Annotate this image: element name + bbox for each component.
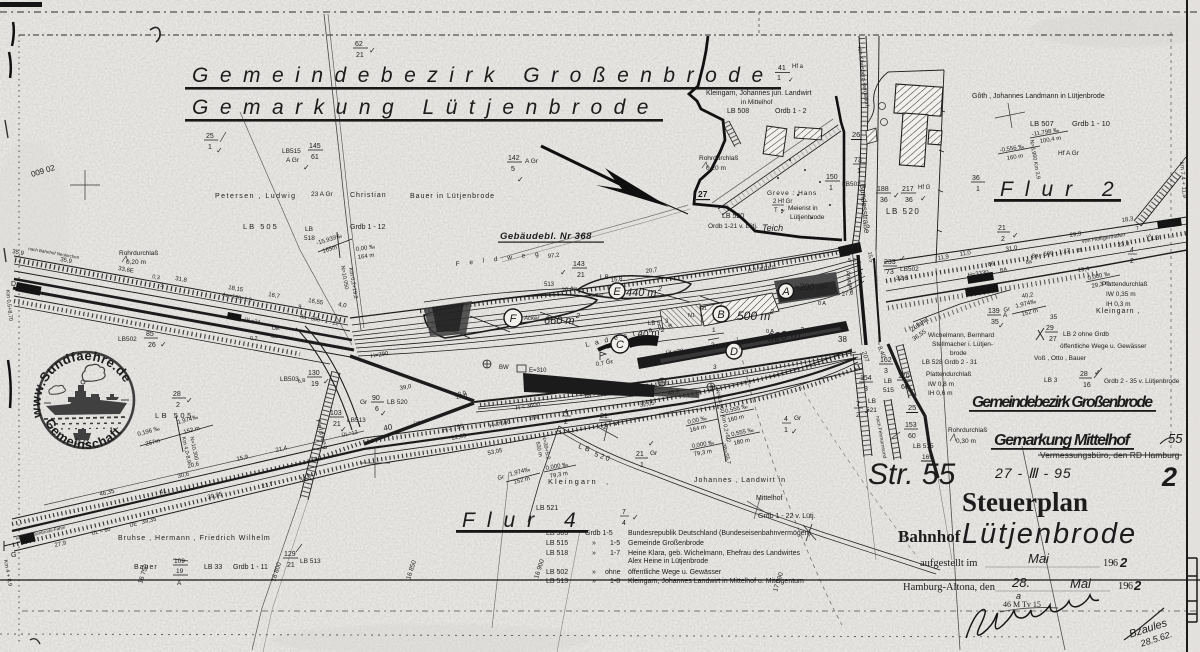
svg-text:A Gr: A Gr bbox=[286, 157, 300, 164]
svg-text:IH 0,3 m: IH 0,3 m bbox=[1106, 301, 1131, 308]
svg-text:Ordb 1 - 2: Ordb 1 - 2 bbox=[775, 108, 807, 115]
svg-text:Hf A Gr: Hf A Gr bbox=[1058, 150, 1080, 157]
svg-text:✓: ✓ bbox=[791, 427, 798, 436]
svg-text:R1: R1 bbox=[700, 306, 707, 312]
svg-text:✓: ✓ bbox=[899, 254, 906, 263]
svg-text:T: T bbox=[774, 208, 778, 214]
svg-text:86: 86 bbox=[987, 261, 994, 268]
svg-text:41: 41 bbox=[778, 65, 786, 72]
svg-text:Kleingarn, Johannes jun. La: Kleingarn, Johannes jun. Landwirt bbox=[706, 90, 812, 97]
svg-text:Ğε: Ğε bbox=[605, 358, 614, 366]
svg-text:E=310: E=310 bbox=[529, 368, 547, 374]
svg-text:Bauer in Lütjenbrode: Bauer in Lütjenbrode bbox=[410, 193, 495, 200]
svg-text:21: 21 bbox=[577, 272, 585, 279]
svg-text:Hamburg-Altona, den: Hamburg-Altona, den bbox=[903, 582, 996, 593]
svg-text:Plattendurchlaß: Plattendurchlaß bbox=[1102, 281, 1148, 288]
svg-text:Lütjenbrode: Lütjenbrode bbox=[790, 214, 825, 221]
svg-text:LB 513: LB 513 bbox=[546, 578, 568, 585]
svg-text:61: 61 bbox=[311, 154, 319, 161]
svg-text:29: 29 bbox=[1046, 325, 1054, 332]
svg-text:0 A: 0 A bbox=[818, 301, 826, 307]
svg-text:Grdb 1 - 10: Grdb 1 - 10 bbox=[1072, 119, 1110, 128]
svg-text:Grdb 2 - 35 v. Lütjenbrode: Grdb 2 - 35 v. Lütjenbrode bbox=[1104, 378, 1180, 385]
svg-text:1-7: 1-7 bbox=[610, 550, 620, 557]
svg-text:✓: ✓ bbox=[369, 46, 376, 55]
svg-text:LB 513: LB 513 bbox=[300, 558, 321, 565]
svg-text:Lütjenbrode: Lütjenbrode bbox=[962, 518, 1137, 550]
svg-text:1: 1 bbox=[857, 168, 861, 175]
svg-text:4: 4 bbox=[564, 409, 568, 416]
svg-text:130: 130 bbox=[308, 370, 320, 377]
svg-text:1: 1 bbox=[829, 185, 833, 192]
svg-text:Gemeinde Großenbrode: Gemeinde Großenbrode bbox=[628, 540, 704, 547]
svg-text:2: 2 bbox=[575, 313, 580, 320]
svg-text:2: 2 bbox=[657, 286, 662, 293]
svg-text:Petersen , Ludwig: Petersen , Ludwig bbox=[215, 193, 297, 200]
svg-text:Voß , Otto , Bauer: Voß , Otto , Bauer bbox=[1034, 355, 1087, 362]
svg-text:LB 507: LB 507 bbox=[1030, 119, 1054, 128]
svg-text:Gr: Gr bbox=[650, 450, 658, 457]
svg-text:Mai: Mai bbox=[1028, 551, 1050, 566]
svg-text:LB: LB bbox=[884, 378, 892, 385]
svg-text:✓: ✓ bbox=[632, 513, 639, 522]
svg-text:LB 520: LB 520 bbox=[722, 213, 744, 220]
svg-text:6: 6 bbox=[375, 406, 379, 413]
svg-text:25: 25 bbox=[206, 133, 214, 140]
svg-text:1: 1 bbox=[208, 144, 212, 151]
svg-text:Flur 2: Flur 2 bbox=[1000, 178, 1126, 201]
svg-text:Gebäudebl. Nr 368: Gebäudebl. Nr 368 bbox=[500, 231, 592, 242]
svg-text:✓: ✓ bbox=[1094, 368, 1101, 377]
svg-text:21: 21 bbox=[287, 562, 295, 569]
svg-text:Hf a: Hf a bbox=[792, 64, 804, 70]
svg-text:73: 73 bbox=[854, 157, 862, 164]
svg-text:Christian: Christian bbox=[350, 192, 387, 199]
svg-text:✓: ✓ bbox=[323, 377, 330, 386]
svg-text:Stellmacher i. Lütjen-: Stellmacher i. Lütjen- bbox=[932, 341, 993, 348]
svg-text:A Gr: A Gr bbox=[525, 158, 539, 165]
svg-text:170: 170 bbox=[898, 373, 910, 380]
svg-text:LB: LB bbox=[868, 398, 876, 405]
svg-text:A: A bbox=[781, 286, 789, 298]
svg-text:6: 6 bbox=[1113, 558, 1118, 569]
svg-text:2: 2 bbox=[564, 419, 568, 426]
svg-text:21: 21 bbox=[356, 52, 364, 59]
svg-text:L B: L B bbox=[600, 275, 609, 281]
svg-text:✓: ✓ bbox=[893, 191, 900, 200]
svg-text:103: 103 bbox=[330, 410, 342, 417]
svg-text:Hf G: Hf G bbox=[918, 185, 931, 191]
svg-text:LB 518: LB 518 bbox=[546, 550, 568, 557]
svg-text:27: 27 bbox=[698, 189, 708, 199]
svg-text:38: 38 bbox=[838, 335, 847, 344]
svg-text:36: 36 bbox=[905, 197, 913, 204]
svg-text:1: 1 bbox=[976, 186, 980, 193]
svg-text:Bruhse , Hermann , Friedri: Bruhse , Hermann , Friedrich Wilhelm bbox=[118, 535, 271, 542]
svg-text:✓: ✓ bbox=[517, 175, 524, 184]
svg-text:217: 217 bbox=[902, 186, 914, 193]
svg-text:öffentliche Wege u. Gewässer: öffentliche Wege u. Gewässer bbox=[1060, 343, 1147, 350]
svg-text:»: » bbox=[592, 578, 596, 585]
svg-text:LB 508: LB 508 bbox=[727, 108, 749, 115]
svg-text:440 m: 440 m bbox=[626, 287, 657, 299]
svg-text:1-8: 1-8 bbox=[610, 578, 620, 585]
svg-text:Kleingarn, Johannes Landwirt i: Kleingarn, Johannes Landwirt in Mittelho… bbox=[628, 578, 804, 585]
svg-text:2: 2 bbox=[660, 327, 665, 334]
svg-text:a: a bbox=[1016, 591, 1021, 601]
svg-text:»: » bbox=[592, 550, 596, 557]
svg-text:Mai: Mai bbox=[1070, 576, 1092, 591]
svg-text:660 m: 660 m bbox=[544, 315, 575, 327]
svg-text:2: 2 bbox=[1119, 555, 1128, 570]
svg-text:23 A Gr: 23 A Gr bbox=[311, 191, 334, 198]
svg-text:19: 19 bbox=[311, 381, 319, 388]
svg-text:IW 0,8 m: IW 0,8 m bbox=[928, 381, 954, 388]
svg-text:LB503: LB503 bbox=[280, 376, 299, 383]
svg-text:Greve : Hans: Greve : Hans bbox=[767, 190, 817, 197]
svg-text:60: 60 bbox=[901, 384, 909, 391]
svg-text:LB 515: LB 515 bbox=[913, 443, 934, 450]
svg-text:LB 2 ohne Grdb: LB 2 ohne Grdb bbox=[1063, 331, 1109, 338]
svg-text:73: 73 bbox=[886, 269, 894, 276]
svg-text:Acker: Acker bbox=[523, 316, 540, 322]
svg-text:154: 154 bbox=[860, 375, 872, 382]
svg-text:IH 0,6 m: IH 0,6 m bbox=[928, 390, 953, 397]
svg-text:21: 21 bbox=[636, 451, 644, 458]
svg-text:✓: ✓ bbox=[340, 425, 347, 434]
svg-text:1: 1 bbox=[712, 327, 716, 334]
svg-text:Rohrdurchlaß: Rohrdurchlaß bbox=[119, 250, 158, 257]
svg-text:Grdb 1 - 22 v. Lütj.: Grdb 1 - 22 v. Lütj. bbox=[758, 513, 816, 520]
svg-text:ÜE: ÜE bbox=[272, 325, 280, 332]
svg-text:LB 5: LB 5 bbox=[648, 321, 661, 327]
svg-text:✓: ✓ bbox=[380, 409, 387, 418]
svg-text:Gε: Gε bbox=[271, 334, 278, 340]
svg-text:LB 33: LB 33 bbox=[204, 564, 222, 571]
svg-text:27 - Ⅲ - 95: 27 - Ⅲ - 95 bbox=[994, 465, 1072, 481]
svg-text:2: 2 bbox=[1133, 578, 1142, 593]
svg-text:5: 5 bbox=[511, 166, 515, 173]
svg-text:521: 521 bbox=[866, 407, 877, 414]
svg-text:3: 3 bbox=[864, 386, 868, 393]
svg-text:Gemeindebezirk Großenbrode: Gemeindebezirk Großenbrode bbox=[192, 64, 775, 87]
svg-text:2: 2 bbox=[1130, 258, 1134, 265]
svg-text:129: 129 bbox=[284, 551, 296, 558]
svg-text:26: 26 bbox=[852, 130, 860, 139]
svg-text:28.: 28. bbox=[1011, 575, 1030, 590]
svg-text:K: K bbox=[1170, 222, 1175, 229]
svg-text:E: E bbox=[613, 286, 621, 298]
svg-text:85: 85 bbox=[146, 331, 154, 338]
svg-text:Str. 55: Str. 55 bbox=[868, 458, 956, 491]
svg-text:brode: brode bbox=[950, 350, 967, 357]
svg-text:✓: ✓ bbox=[780, 209, 786, 216]
svg-text:233: 233 bbox=[884, 259, 896, 266]
svg-text:45/6a²: 45/6a² bbox=[588, 293, 604, 299]
svg-text:153: 153 bbox=[905, 422, 917, 429]
svg-text:Rohrdurchlaß: Rohrdurchlaß bbox=[948, 427, 987, 434]
svg-text:36: 36 bbox=[880, 197, 888, 204]
svg-text:28: 28 bbox=[1080, 371, 1088, 378]
svg-text:Bahnhof: Bahnhof bbox=[898, 527, 961, 546]
svg-text:518: 518 bbox=[304, 235, 315, 242]
svg-text:Gemeindebezirk Großenbrode: Gemeindebezirk Großenbrode bbox=[972, 394, 1153, 411]
svg-text:LB 520: LB 520 bbox=[387, 399, 408, 406]
svg-text:1: 1 bbox=[784, 427, 788, 434]
svg-text:55: 55 bbox=[1168, 431, 1183, 446]
svg-text:D: D bbox=[11, 281, 16, 288]
svg-text:D: D bbox=[730, 346, 738, 358]
svg-text:in Mittelhof: in Mittelhof bbox=[741, 99, 773, 106]
svg-text:BA: BA bbox=[999, 267, 1008, 274]
svg-text:,: , bbox=[606, 477, 608, 486]
svg-text:145: 145 bbox=[309, 143, 321, 150]
svg-text:2: 2 bbox=[176, 402, 180, 409]
svg-text:✓: ✓ bbox=[160, 340, 167, 349]
svg-text:25: 25 bbox=[908, 403, 916, 412]
svg-text:LB 528 Grdb 2 - 31: LB 528 Grdb 2 - 31 bbox=[922, 359, 978, 366]
svg-text:6: 6 bbox=[1128, 581, 1133, 592]
svg-text:21: 21 bbox=[998, 225, 1006, 232]
svg-text:✓: ✓ bbox=[614, 419, 621, 428]
svg-text:90: 90 bbox=[372, 395, 380, 402]
svg-text:143: 143 bbox=[573, 261, 585, 268]
svg-text:139: 139 bbox=[988, 308, 1000, 315]
svg-text:B: B bbox=[717, 309, 724, 321]
svg-text:Johannes , Landwirt in: Johannes , Landwirt in bbox=[694, 477, 786, 484]
svg-text:✓: ✓ bbox=[788, 77, 794, 84]
svg-text:Bundesrepublik Deutschland (Bu: Bundesrepublik Deutschland (Bundeseisenb… bbox=[628, 530, 811, 537]
svg-text:✓: ✓ bbox=[998, 321, 1005, 330]
svg-text:Flur 4: Flur 4 bbox=[462, 509, 588, 532]
svg-text:142: 142 bbox=[508, 155, 520, 162]
svg-text:LB 505: LB 505 bbox=[243, 222, 279, 231]
svg-text:3: 3 bbox=[713, 364, 717, 371]
svg-text:0 A: 0 A bbox=[766, 329, 774, 335]
svg-text:0,20 m: 0,20 m bbox=[706, 165, 726, 172]
svg-text:28: 28 bbox=[173, 391, 181, 398]
svg-text:1: 1 bbox=[640, 462, 644, 469]
svg-text:7: 7 bbox=[856, 401, 860, 408]
svg-text:Grdb 1 - 11: Grdb 1 - 11 bbox=[233, 564, 268, 571]
svg-text:3: 3 bbox=[160, 283, 163, 289]
svg-text:»: » bbox=[592, 540, 596, 547]
svg-text:LB502: LB502 bbox=[118, 336, 137, 343]
svg-text:4: 4 bbox=[1130, 247, 1134, 254]
svg-text:LB 515: LB 515 bbox=[546, 540, 568, 547]
svg-text:26: 26 bbox=[148, 342, 156, 349]
svg-text:G: G bbox=[11, 552, 16, 559]
svg-text:Gemarkung Mittelhof: Gemarkung Mittelhof bbox=[994, 432, 1132, 449]
svg-text:Ordb 1-21 v. Lütj.: Ordb 1-21 v. Lütj. bbox=[708, 223, 758, 230]
svg-text:LB 503: LB 503 bbox=[546, 530, 568, 537]
svg-text:öffentliche Wege u. Gewässer: öffentliche Wege u. Gewässer bbox=[628, 569, 722, 576]
svg-text:IW 0,35 m: IW 0,35 m bbox=[1106, 291, 1136, 298]
svg-text:Gôth , Johannes Landmann i: Gôth , Johannes Landmann in Lütjenbrode bbox=[972, 93, 1105, 100]
svg-text:A: A bbox=[177, 580, 182, 587]
svg-text:Meierist in: Meierist in bbox=[788, 205, 818, 212]
svg-text:BW: BW bbox=[499, 365, 509, 371]
svg-text:LB: LB bbox=[305, 226, 313, 233]
svg-text:LB515: LB515 bbox=[282, 148, 301, 155]
svg-text:N1: N1 bbox=[688, 313, 695, 319]
svg-text:aufgestellt im: aufgestellt im bbox=[920, 558, 977, 569]
svg-text:5,3: 5,3 bbox=[848, 258, 856, 264]
svg-text:Gr: Gr bbox=[360, 399, 368, 406]
svg-text:✓: ✓ bbox=[920, 194, 927, 203]
svg-text:2: 2 bbox=[711, 342, 715, 349]
svg-text:ohne: ohne bbox=[605, 569, 621, 576]
svg-text:515: 515 bbox=[883, 387, 894, 394]
svg-text:2: 2 bbox=[799, 327, 804, 334]
svg-text:36: 36 bbox=[972, 175, 980, 182]
svg-text:0,20 m: 0,20 m bbox=[126, 259, 146, 266]
svg-text:Alex Heine in Lütjenbrode: Alex Heine in Lütjenbrode bbox=[628, 558, 708, 565]
svg-text:4: 4 bbox=[784, 416, 788, 423]
svg-text:0,30 m: 0,30 m bbox=[956, 438, 976, 445]
svg-text:A: A bbox=[1003, 312, 1008, 319]
svg-text:4: 4 bbox=[622, 520, 626, 527]
svg-text:2: 2 bbox=[1001, 236, 1005, 243]
svg-text:✓: ✓ bbox=[1012, 231, 1019, 240]
svg-text:✓: ✓ bbox=[648, 439, 655, 448]
svg-text:Gr: Gr bbox=[794, 415, 802, 422]
svg-text:Grdb 1-5: Grdb 1-5 bbox=[585, 530, 613, 537]
svg-text:Gemarkung Lütjenbrode: Gemarkung Lütjenbrode bbox=[192, 96, 660, 119]
svg-text:LB502: LB502 bbox=[900, 266, 919, 273]
svg-text:Teich: Teich bbox=[762, 223, 783, 233]
svg-text:60: 60 bbox=[908, 433, 916, 440]
svg-text:1-5: 1-5 bbox=[610, 540, 620, 547]
svg-text:✓: ✓ bbox=[303, 163, 310, 172]
svg-text:19: 19 bbox=[1103, 558, 1114, 569]
svg-text:19: 19 bbox=[1118, 581, 1129, 592]
svg-text:0,2: 0,2 bbox=[250, 336, 258, 342]
svg-text:Kleingarn ,: Kleingarn , bbox=[1096, 308, 1140, 315]
svg-text:✓: ✓ bbox=[560, 268, 567, 277]
svg-text:LB 520: LB 520 bbox=[886, 207, 920, 216]
svg-text:✓: ✓ bbox=[186, 396, 193, 405]
svg-text:32,6: 32,6 bbox=[896, 276, 908, 282]
svg-text:7: 7 bbox=[622, 509, 626, 516]
svg-text:≈200 m²: ≈200 m² bbox=[794, 282, 828, 292]
svg-text:2: 2 bbox=[856, 412, 860, 419]
svg-text:Rohrdurchlaß: Rohrdurchlaß bbox=[699, 155, 738, 162]
svg-text:0,7: 0,7 bbox=[595, 361, 605, 368]
svg-text:Plattendurchlaß: Plattendurchlaß bbox=[926, 371, 972, 378]
svg-text:162: 162 bbox=[880, 357, 892, 364]
svg-text:LB 3: LB 3 bbox=[1044, 377, 1058, 384]
svg-text:500 m: 500 m bbox=[737, 309, 770, 323]
svg-text:3: 3 bbox=[884, 368, 888, 375]
svg-text:2: 2 bbox=[1161, 462, 1177, 492]
svg-text:513: 513 bbox=[544, 282, 555, 288]
svg-text:21: 21 bbox=[600, 413, 608, 420]
svg-text:16: 16 bbox=[1083, 382, 1091, 389]
svg-text:35: 35 bbox=[1050, 314, 1058, 321]
svg-text:Wichelmann, Bernhard: Wichelmann, Bernhard bbox=[928, 332, 994, 339]
svg-text:»: » bbox=[592, 569, 596, 576]
svg-text:188: 188 bbox=[877, 186, 889, 193]
svg-text:Steuerplan: Steuerplan bbox=[962, 487, 1088, 517]
svg-text:2: 2 bbox=[769, 309, 774, 316]
svg-text:LB 502: LB 502 bbox=[546, 569, 568, 576]
svg-text:150: 150 bbox=[826, 174, 838, 181]
svg-text:Heine Klara, geb. Wichelmann,: Heine Klara, geb. Wichelmann, Ehefrau de… bbox=[628, 550, 800, 557]
svg-text:62: 62 bbox=[355, 41, 363, 48]
svg-text:✓: ✓ bbox=[216, 146, 223, 155]
svg-text:Grdb 1 - 12: Grdb 1 - 12 bbox=[350, 224, 386, 231]
svg-text:1: 1 bbox=[777, 75, 781, 82]
svg-text:19: 19 bbox=[176, 568, 184, 575]
svg-text:27: 27 bbox=[1049, 336, 1057, 343]
svg-text:LB513: LB513 bbox=[347, 417, 366, 424]
